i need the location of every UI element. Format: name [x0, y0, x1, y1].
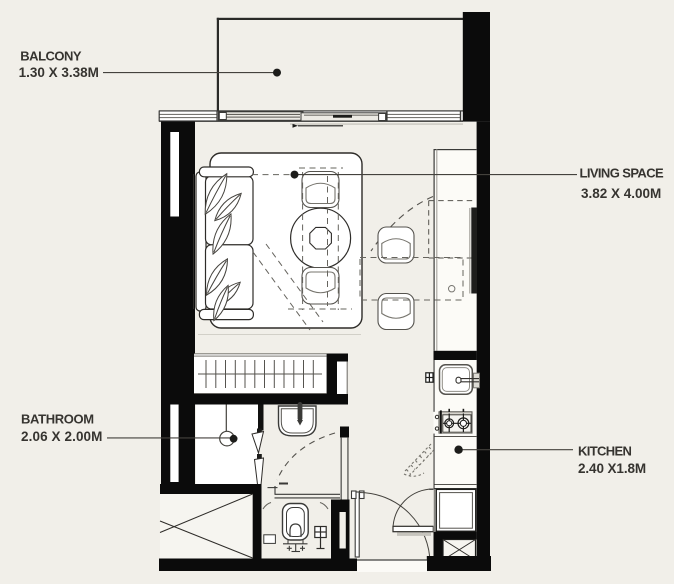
svg-text:1.30 X 3.38M: 1.30 X 3.38M [19, 65, 99, 80]
svg-text:BATHROOM: BATHROOM [21, 411, 94, 426]
svg-text:3.82 X 4.00M: 3.82 X 4.00M [581, 186, 661, 201]
svg-text:2.06 X 2.00M: 2.06 X 2.00M [21, 429, 103, 444]
svg-text:LIVING SPACE: LIVING SPACE [580, 165, 665, 180]
svg-text:BALCONY: BALCONY [20, 48, 82, 63]
svg-text:2.40 X1.8M: 2.40 X1.8M [578, 461, 646, 476]
svg-text:KITCHEN: KITCHEN [578, 443, 631, 458]
